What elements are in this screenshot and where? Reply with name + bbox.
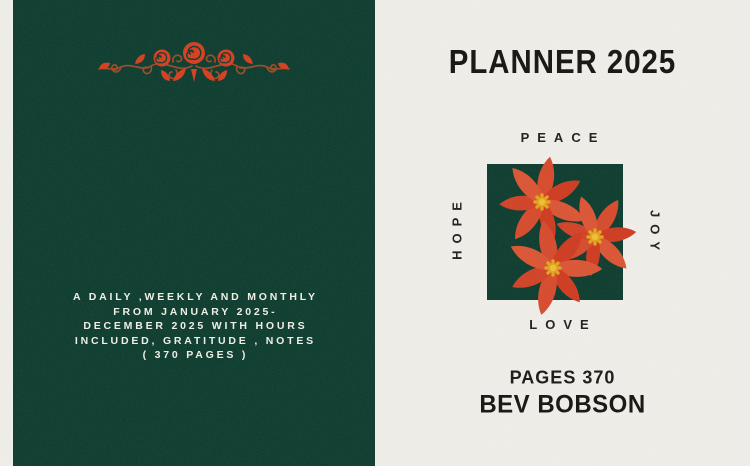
word-peace: PEACE xyxy=(487,130,631,145)
rose-vine-ornament-icon xyxy=(89,40,299,96)
description-line: DECEMBER 2025 WITH HOURS xyxy=(13,319,375,334)
rose-left xyxy=(154,50,171,67)
author-name: BEV BOBSON xyxy=(375,390,750,419)
description-line: ( 370 PAGES ) xyxy=(13,348,375,363)
rose-right xyxy=(218,50,235,67)
red-flowers-icon xyxy=(470,146,650,326)
back-cover-panel: A DAILY ,WEEKLY AND MONTHLY FROM JANUARY… xyxy=(13,0,375,466)
planner-cover-spread: A DAILY ,WEEKLY AND MONTHLY FROM JANUARY… xyxy=(0,0,750,466)
word-love: LOVE xyxy=(487,317,631,332)
word-hope: HOPE xyxy=(450,195,465,267)
back-cover-description: A DAILY ,WEEKLY AND MONTHLY FROM JANUARY… xyxy=(13,290,375,363)
description-line: FROM JANUARY 2025- xyxy=(13,305,375,320)
rose-center xyxy=(183,42,205,64)
pages-count-label: PAGES 370 xyxy=(375,366,750,388)
description-line: INCLUDED, GRATITUDE , NOTES xyxy=(13,334,375,349)
cover-title: PLANNER 2025 xyxy=(379,44,747,82)
description-line: A DAILY ,WEEKLY AND MONTHLY xyxy=(13,290,375,305)
word-joy: JOY xyxy=(648,203,663,257)
front-cover-panel: PLANNER 2025 PEACE xyxy=(375,0,750,466)
